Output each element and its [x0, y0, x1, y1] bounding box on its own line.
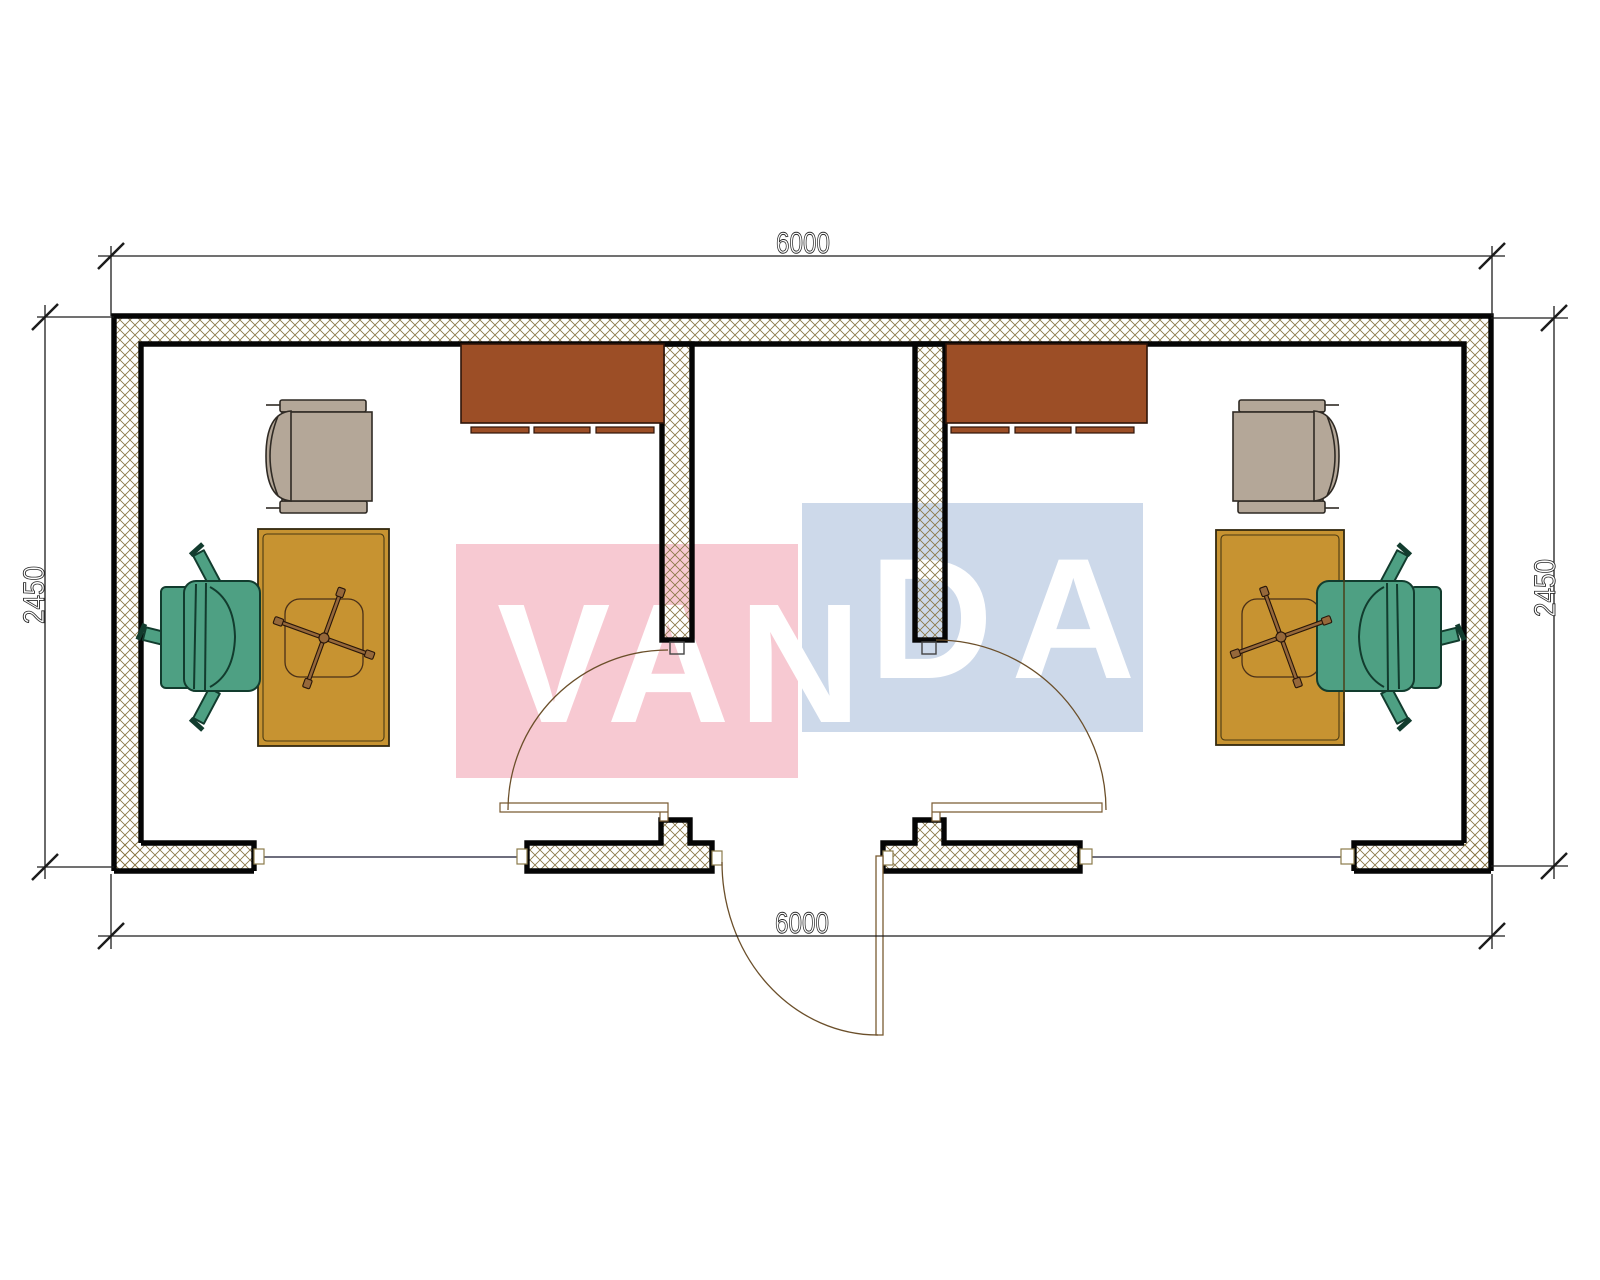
svg-text:6000: 6000 — [776, 227, 830, 260]
svg-text:2450: 2450 — [1529, 559, 1562, 617]
svg-text:DA: DA — [869, 523, 1153, 715]
svg-text:6000: 6000 — [775, 907, 829, 940]
svg-text:2450: 2450 — [18, 566, 51, 624]
